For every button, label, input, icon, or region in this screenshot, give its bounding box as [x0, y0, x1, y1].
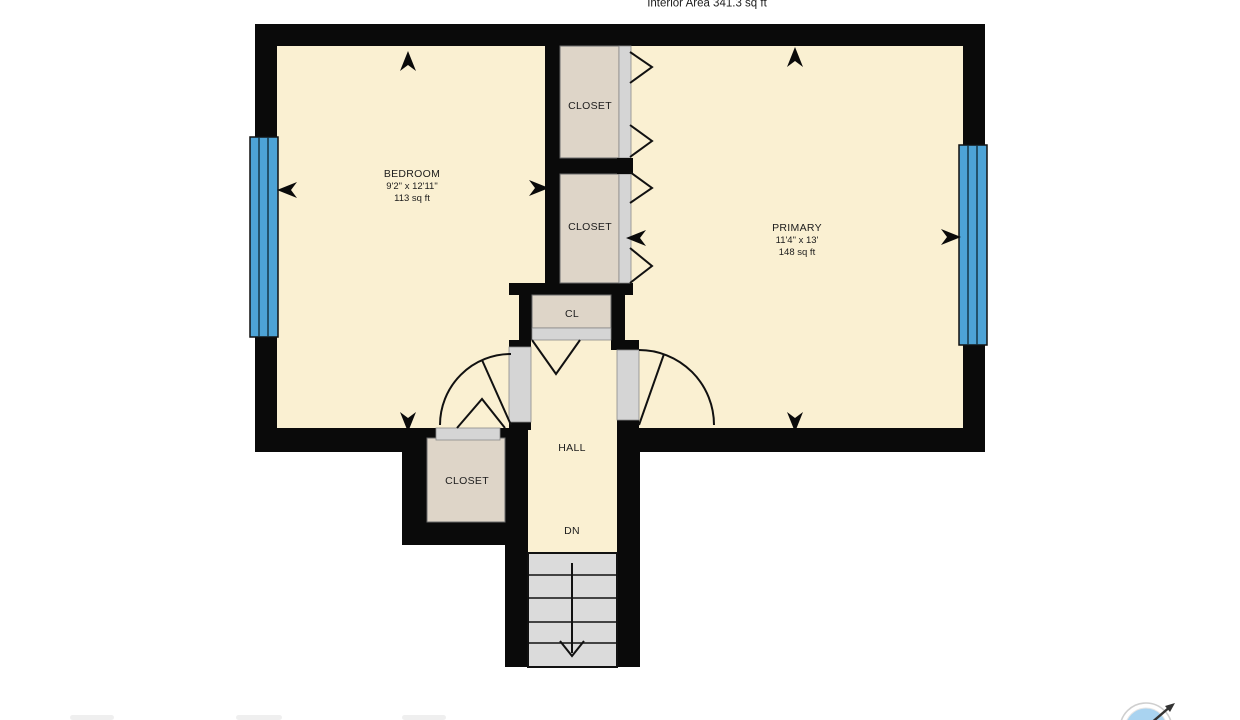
opening-closet-bedroom — [436, 428, 500, 440]
wall-right-upper — [963, 24, 985, 145]
wall-top — [255, 24, 985, 46]
wall-cl-left — [519, 295, 532, 340]
wall-stairwell-right — [617, 428, 640, 667]
stairs-down-label: DN — [564, 525, 580, 537]
wall-protrusion-bottom — [427, 522, 513, 545]
opening-closet-hall — [532, 328, 611, 340]
wall-door-right-jamb-top — [617, 340, 639, 350]
wall-bedroom-bottom — [255, 428, 402, 452]
bedroom-floor — [277, 46, 545, 428]
opening-bedroom-door — [509, 347, 531, 422]
opening-closet-upper — [619, 46, 631, 158]
bedroom-area: 113 sq ft — [394, 193, 430, 204]
bedroom-name: BEDROOM — [384, 168, 440, 180]
hall-label: HALL — [558, 442, 585, 454]
floorplan-page: Interior Area 341.3 sq ft BEDROOM 9'2" x… — [0, 0, 1240, 720]
floorplan-drawing: Interior Area 341.3 sq ft BEDROOM 9'2" x… — [0, 0, 1240, 720]
wall-left-upper — [255, 24, 277, 137]
closet-bedroom-label: CLOSET — [445, 475, 489, 487]
closet-upper-label: CLOSET — [568, 100, 612, 112]
wall-stairwell-left — [505, 428, 528, 667]
interior-area-title: Interior Area 341.3 sq ft — [647, 0, 767, 10]
wall-primary-bottom — [640, 428, 985, 452]
window-right — [959, 145, 987, 345]
primary-area: 148 sq ft — [779, 247, 816, 258]
wall-door-left-jamb-top — [509, 340, 531, 347]
primary-name: PRIMARY — [772, 222, 822, 234]
closet-lower-label: CLOSET — [568, 221, 612, 233]
compass-icon — [1120, 703, 1175, 720]
wall-protrusion-left — [402, 428, 427, 545]
bottom-edge-artifact — [70, 715, 446, 720]
bedroom-dimensions: 9'2" x 12'11" — [386, 181, 437, 192]
closet-hall-label: CL — [565, 308, 579, 320]
wall-cl-top — [509, 283, 633, 295]
primary-dimensions: 11'4" x 13' — [776, 235, 819, 246]
window-left — [250, 137, 278, 337]
opening-primary-door — [617, 350, 639, 420]
opening-closet-lower — [619, 174, 631, 283]
